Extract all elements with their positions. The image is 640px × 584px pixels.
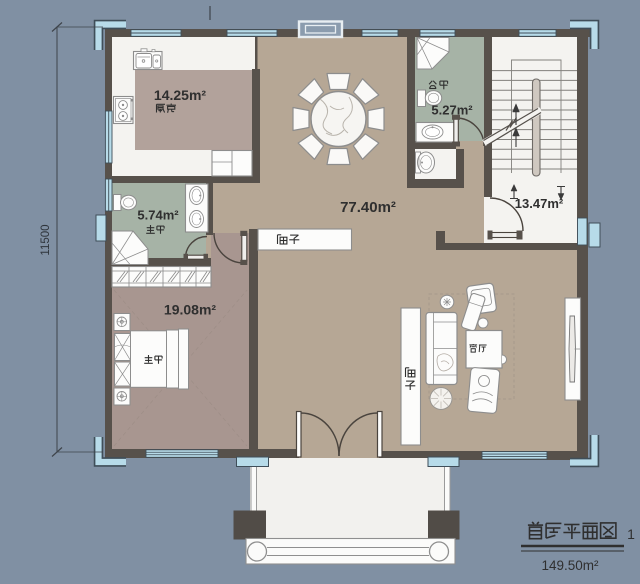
svg-text:13.47m²: 13.47m²	[515, 196, 564, 211]
svg-text:77.40m²: 77.40m²	[340, 199, 396, 216]
svg-text:14.25m²: 14.25m²	[154, 87, 206, 103]
svg-text:149.50m²: 149.50m²	[541, 558, 599, 573]
svg-text:19.08m²: 19.08m²	[164, 302, 216, 318]
svg-text:5.27m²: 5.27m²	[431, 103, 473, 118]
svg-text:5.74m²: 5.74m²	[137, 208, 179, 223]
svg-text:11500: 11500	[40, 224, 52, 255]
svg-text:1: 1	[627, 526, 635, 542]
